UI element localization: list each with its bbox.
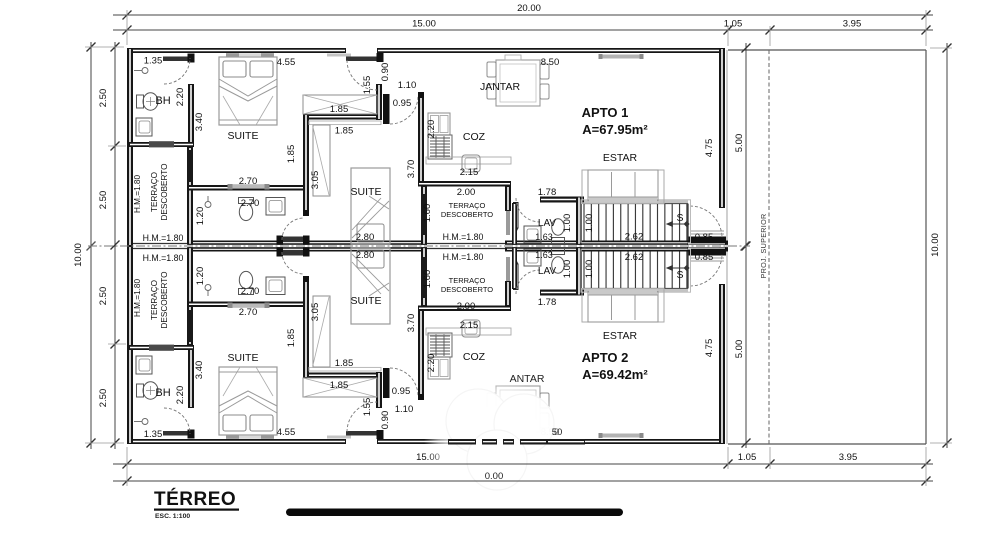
svg-text:H.M.=1.80: H.M.=1.80 bbox=[133, 175, 142, 213]
svg-text:4.75: 4.75 bbox=[704, 139, 715, 158]
svg-text:2.15: 2.15 bbox=[460, 320, 479, 331]
svg-text:4.55: 4.55 bbox=[277, 427, 296, 438]
svg-text:2.50: 2.50 bbox=[98, 287, 109, 306]
svg-text:2.70: 2.70 bbox=[241, 198, 260, 209]
svg-text:1.63: 1.63 bbox=[535, 250, 553, 260]
svg-text:APTO 2: APTO 2 bbox=[582, 350, 629, 365]
svg-text:1.20: 1.20 bbox=[195, 267, 206, 286]
svg-text:20.00: 20.00 bbox=[517, 3, 541, 14]
svg-text:APTO 1: APTO 1 bbox=[582, 105, 629, 120]
svg-text:2.20: 2.20 bbox=[175, 386, 186, 405]
svg-text:8.50: 8.50 bbox=[541, 57, 560, 68]
svg-text:2.00: 2.00 bbox=[457, 187, 476, 198]
svg-text:TERRAÇO: TERRAÇO bbox=[150, 280, 159, 320]
svg-text:S: S bbox=[676, 269, 683, 281]
svg-text:1.60: 1.60 bbox=[422, 204, 433, 223]
svg-text:1.00: 1.00 bbox=[584, 260, 595, 279]
svg-text:4.55: 4.55 bbox=[277, 57, 296, 68]
svg-text:1.85: 1.85 bbox=[286, 329, 297, 348]
svg-text:0.95: 0.95 bbox=[392, 386, 411, 397]
svg-text:2.62: 2.62 bbox=[625, 252, 644, 263]
svg-text:1.55: 1.55 bbox=[362, 398, 373, 417]
svg-text:ESTAR: ESTAR bbox=[603, 152, 638, 164]
svg-text:15.00: 15.00 bbox=[412, 19, 436, 30]
svg-text:LAV: LAV bbox=[538, 218, 556, 229]
svg-text:DESCOBERTO: DESCOBERTO bbox=[441, 210, 493, 219]
svg-text:1.55: 1.55 bbox=[362, 76, 373, 95]
svg-text:DESCOBERTO: DESCOBERTO bbox=[160, 163, 169, 220]
svg-text:H.M.=1.80: H.M.=1.80 bbox=[443, 252, 484, 262]
svg-text:1.60: 1.60 bbox=[422, 270, 433, 289]
svg-text:3.40: 3.40 bbox=[194, 113, 205, 132]
svg-text:H.M.=1.80: H.M.=1.80 bbox=[133, 279, 142, 317]
svg-text:2.70: 2.70 bbox=[239, 176, 258, 187]
svg-text:TÉRREO: TÉRREO bbox=[154, 488, 236, 510]
svg-text:COZ: COZ bbox=[463, 131, 486, 143]
svg-text:2.20: 2.20 bbox=[426, 120, 437, 139]
svg-text:1.78: 1.78 bbox=[538, 297, 557, 308]
svg-text:1.10: 1.10 bbox=[395, 404, 414, 415]
svg-text:PROJ. SUPERIOR: PROJ. SUPERIOR bbox=[759, 214, 768, 279]
svg-text:2.20: 2.20 bbox=[175, 88, 186, 107]
svg-text:10.00: 10.00 bbox=[930, 233, 941, 257]
svg-text:H.M.=1.80: H.M.=1.80 bbox=[443, 232, 484, 242]
svg-text:2.15: 2.15 bbox=[460, 167, 479, 178]
svg-text:S: S bbox=[676, 212, 683, 224]
svg-text:1.10: 1.10 bbox=[398, 80, 417, 91]
svg-text:2.62: 2.62 bbox=[625, 232, 644, 243]
svg-text:TERRAÇO: TERRAÇO bbox=[150, 172, 159, 212]
svg-text:2.50: 2.50 bbox=[98, 389, 109, 408]
svg-text:1.63: 1.63 bbox=[535, 232, 553, 242]
svg-text:2.20: 2.20 bbox=[426, 354, 437, 373]
svg-text:0.85: 0.85 bbox=[695, 232, 714, 243]
svg-text:1.00: 1.00 bbox=[562, 214, 573, 233]
svg-text:A=69.42m²: A=69.42m² bbox=[582, 367, 648, 382]
svg-text:A=67.95m²: A=67.95m² bbox=[582, 122, 648, 137]
svg-text:2.70: 2.70 bbox=[241, 286, 260, 297]
svg-text:2.70: 2.70 bbox=[239, 307, 258, 318]
svg-text:SUITE: SUITE bbox=[228, 130, 259, 142]
svg-text:1.05: 1.05 bbox=[724, 19, 743, 30]
svg-text:DESCOBERTO: DESCOBERTO bbox=[160, 271, 169, 328]
svg-text:1.78: 1.78 bbox=[538, 187, 557, 198]
svg-text:ESC. 1:100: ESC. 1:100 bbox=[155, 513, 190, 520]
svg-text:3.40: 3.40 bbox=[194, 361, 205, 380]
svg-text:1.35: 1.35 bbox=[144, 56, 163, 67]
svg-text:0.90: 0.90 bbox=[380, 411, 391, 430]
svg-text:1.85: 1.85 bbox=[335, 126, 354, 137]
svg-text:1.35: 1.35 bbox=[144, 429, 163, 440]
svg-text:COZ: COZ bbox=[463, 351, 486, 363]
svg-text:0.90: 0.90 bbox=[380, 63, 391, 82]
svg-text:2.80: 2.80 bbox=[356, 250, 375, 261]
svg-text:LAV: LAV bbox=[538, 266, 556, 277]
svg-text:3.05: 3.05 bbox=[310, 303, 321, 322]
svg-text:SUITE: SUITE bbox=[228, 352, 259, 364]
svg-text:0.85: 0.85 bbox=[695, 252, 714, 263]
svg-text:5.00: 5.00 bbox=[734, 340, 745, 359]
svg-text:SUITE: SUITE bbox=[351, 186, 382, 198]
svg-text:4.75: 4.75 bbox=[704, 339, 715, 358]
svg-text:3.95: 3.95 bbox=[839, 452, 858, 463]
svg-text:3.95: 3.95 bbox=[843, 19, 862, 30]
svg-text:1.00: 1.00 bbox=[584, 214, 595, 233]
svg-text:BH: BH bbox=[155, 387, 170, 399]
svg-text:2.00: 2.00 bbox=[457, 301, 476, 312]
svg-text:5.00: 5.00 bbox=[734, 134, 745, 153]
svg-text:SUITE: SUITE bbox=[351, 295, 382, 307]
svg-text:TERRAÇO: TERRAÇO bbox=[449, 201, 486, 210]
svg-text:1.20: 1.20 bbox=[195, 207, 206, 226]
svg-text:1.85: 1.85 bbox=[335, 358, 354, 369]
svg-text:H.M.=1.80: H.M.=1.80 bbox=[143, 253, 184, 263]
svg-text:ESTAR: ESTAR bbox=[603, 330, 638, 342]
svg-text:2.80: 2.80 bbox=[356, 232, 375, 243]
svg-text:10.00: 10.00 bbox=[73, 243, 84, 267]
svg-text:1.00: 1.00 bbox=[562, 260, 573, 279]
svg-text:0.95: 0.95 bbox=[393, 98, 412, 109]
svg-text:H.M.=1.80: H.M.=1.80 bbox=[143, 233, 184, 243]
svg-text:TERRAÇO: TERRAÇO bbox=[449, 276, 486, 285]
svg-text:3.05: 3.05 bbox=[310, 171, 321, 190]
svg-text:2.50: 2.50 bbox=[98, 191, 109, 210]
svg-text:1.85: 1.85 bbox=[330, 380, 349, 391]
svg-text:JANTAR: JANTAR bbox=[480, 81, 520, 93]
svg-text:ANTAR: ANTAR bbox=[510, 373, 545, 385]
svg-text:50: 50 bbox=[552, 427, 563, 438]
svg-text:3.70: 3.70 bbox=[406, 160, 417, 179]
svg-text:0.00: 0.00 bbox=[485, 471, 504, 482]
svg-text:1.05: 1.05 bbox=[738, 452, 757, 463]
svg-text:1.85: 1.85 bbox=[330, 104, 349, 115]
svg-text:3.70: 3.70 bbox=[406, 314, 417, 333]
svg-text:BH: BH bbox=[155, 95, 170, 107]
svg-text:DESCOBERTO: DESCOBERTO bbox=[441, 285, 493, 294]
svg-text:2.50: 2.50 bbox=[98, 89, 109, 108]
svg-text:1.85: 1.85 bbox=[286, 145, 297, 164]
